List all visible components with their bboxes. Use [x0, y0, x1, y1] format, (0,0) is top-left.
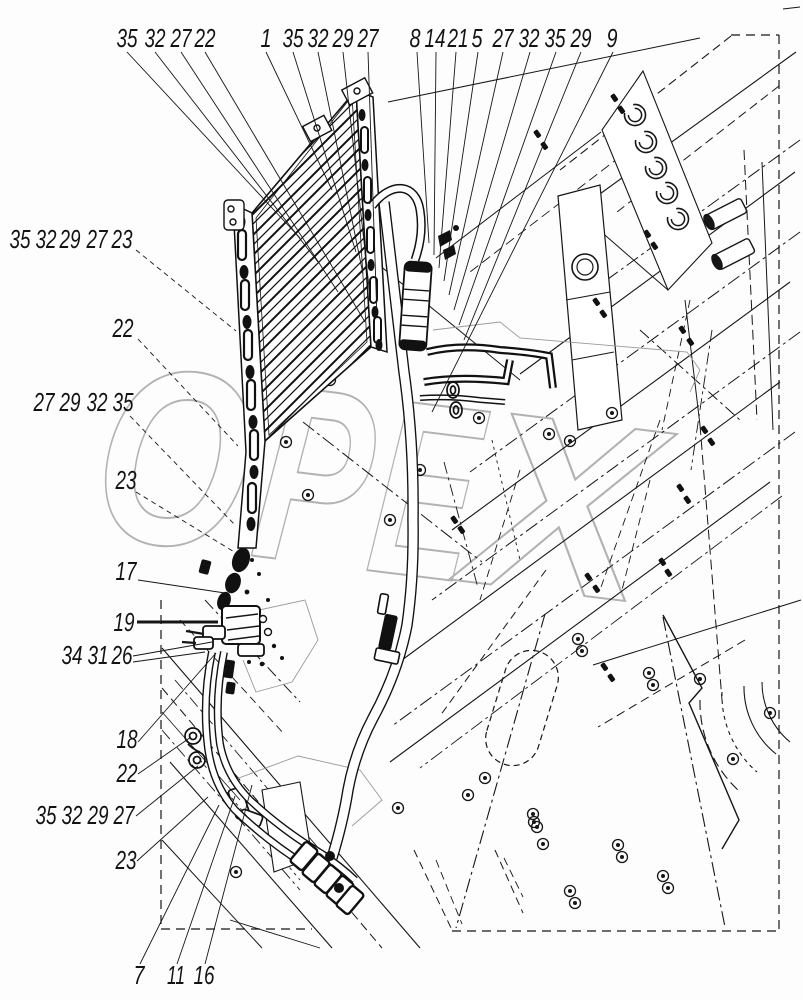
- svg-text:21: 21: [447, 23, 469, 53]
- svg-text:29: 29: [59, 224, 81, 254]
- svg-text:35: 35: [36, 800, 57, 830]
- svg-text:32: 32: [62, 800, 83, 830]
- svg-text:22: 22: [116, 758, 138, 788]
- svg-text:17: 17: [116, 556, 138, 586]
- svg-text:32: 32: [145, 23, 166, 53]
- svg-text:16: 16: [194, 960, 215, 990]
- svg-text:23: 23: [115, 845, 137, 875]
- svg-text:35: 35: [10, 224, 31, 254]
- svg-text:7: 7: [134, 960, 146, 990]
- svg-text:27: 27: [170, 23, 193, 53]
- svg-text:5: 5: [472, 23, 483, 53]
- svg-text:11: 11: [167, 960, 185, 990]
- svg-text:23: 23: [115, 465, 137, 495]
- svg-text:32: 32: [87, 387, 108, 417]
- svg-text:32: 32: [308, 23, 329, 53]
- svg-text:27: 27: [357, 23, 380, 53]
- svg-text:27: 27: [86, 224, 109, 254]
- svg-text:35: 35: [113, 387, 134, 417]
- svg-text:35: 35: [283, 23, 304, 53]
- svg-text:22: 22: [194, 23, 216, 53]
- svg-text:27: 27: [33, 387, 56, 417]
- svg-text:26: 26: [111, 640, 133, 670]
- svg-text:19: 19: [114, 607, 135, 637]
- svg-text:27: 27: [492, 23, 515, 53]
- svg-text:31: 31: [88, 640, 109, 670]
- svg-text:29: 29: [87, 800, 109, 830]
- svg-text:29: 29: [332, 23, 354, 53]
- svg-text:9: 9: [607, 23, 618, 53]
- svg-text:29: 29: [59, 387, 81, 417]
- svg-text:32: 32: [36, 224, 57, 254]
- svg-text:22: 22: [112, 313, 134, 343]
- svg-text:29: 29: [570, 23, 592, 53]
- svg-text:35: 35: [117, 23, 138, 53]
- svg-text:1: 1: [261, 23, 272, 53]
- svg-text:14: 14: [425, 23, 446, 53]
- svg-text:8: 8: [410, 23, 421, 53]
- svg-text:35: 35: [545, 23, 566, 53]
- svg-text:18: 18: [117, 724, 138, 754]
- svg-text:32: 32: [519, 23, 540, 53]
- svg-text:27: 27: [113, 800, 136, 830]
- svg-text:23: 23: [111, 224, 133, 254]
- svg-text:34: 34: [62, 640, 83, 670]
